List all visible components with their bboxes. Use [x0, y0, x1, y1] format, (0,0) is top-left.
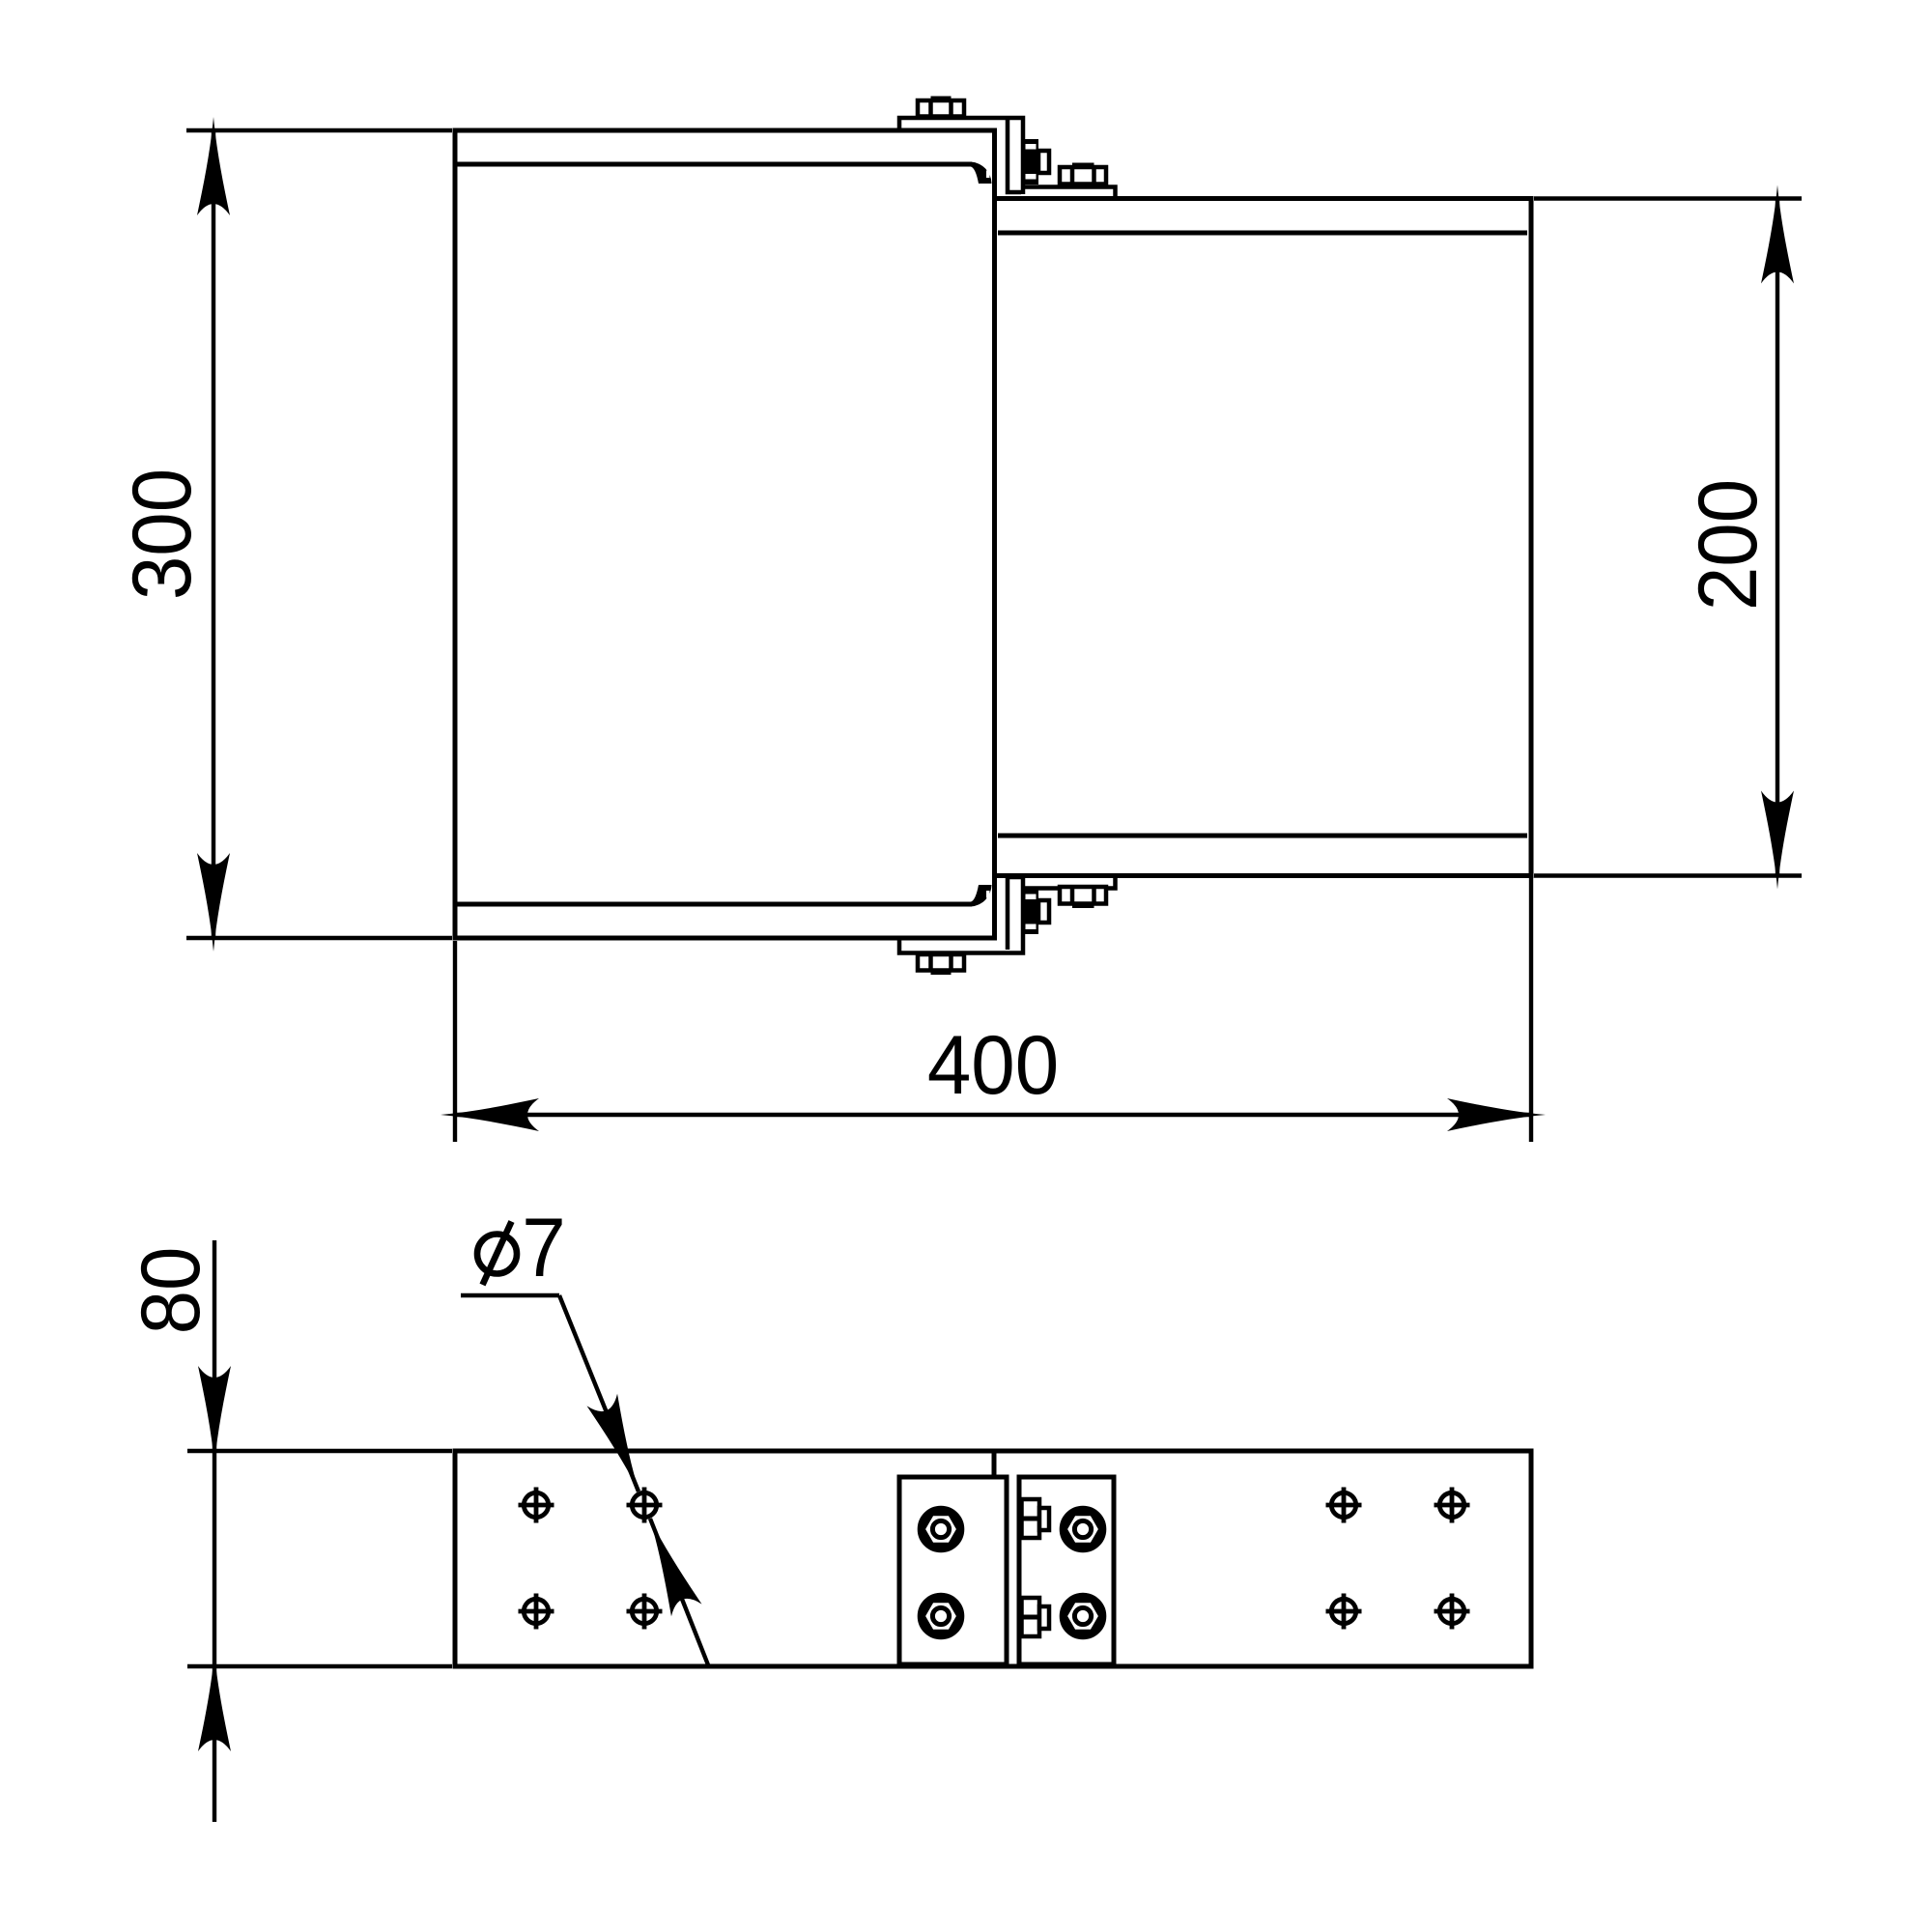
- svg-text:300: 300: [115, 469, 208, 600]
- svg-text:7: 7: [522, 1201, 565, 1293]
- svg-text:200: 200: [1681, 479, 1774, 611]
- svg-text:80: 80: [124, 1247, 216, 1335]
- svg-text:400: 400: [927, 1018, 1059, 1111]
